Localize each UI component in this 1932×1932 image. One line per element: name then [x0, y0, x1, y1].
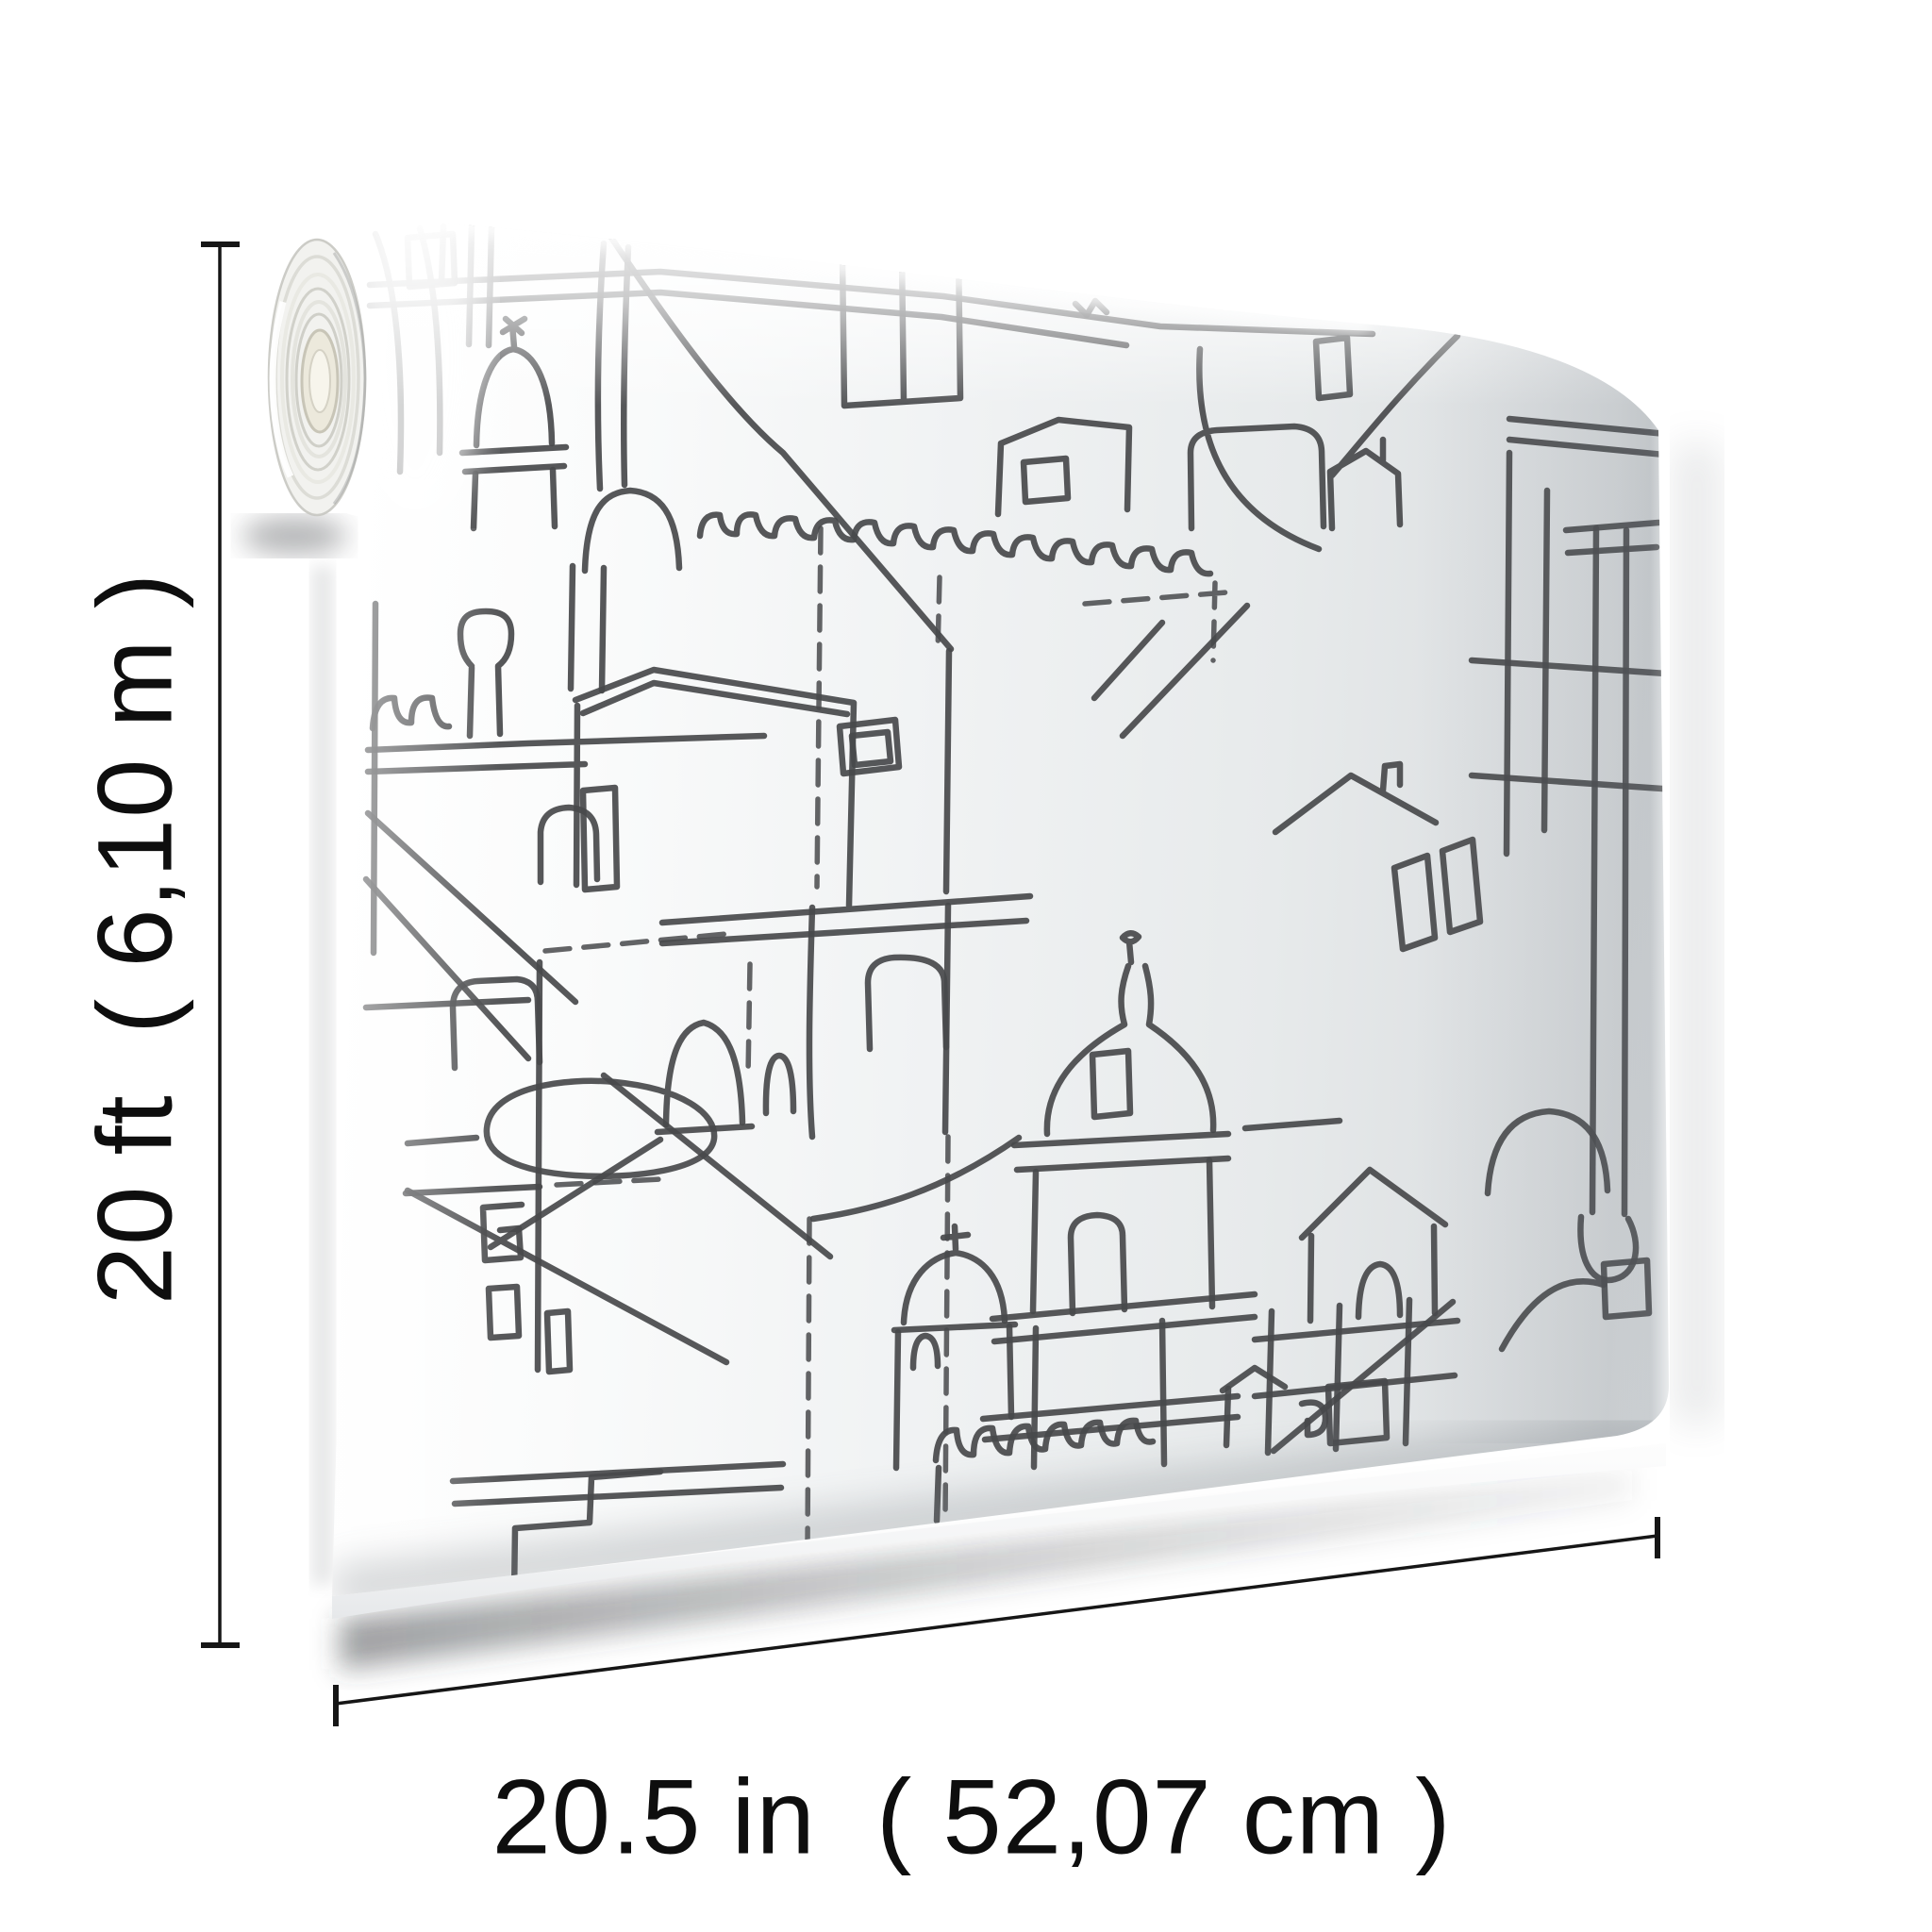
- product-image: 20 ft ( 6,10 m ) 20.5 in ( 52,07 cm ): [0, 0, 1932, 1932]
- wallpaper-roll: [269, 240, 365, 515]
- product-photo: [0, 0, 1932, 1932]
- width-dimension-label: 20.5 in ( 52,07 cm ): [491, 1757, 1451, 1878]
- height-dimension-label: 20 ft ( 6,10 m ): [75, 573, 196, 1305]
